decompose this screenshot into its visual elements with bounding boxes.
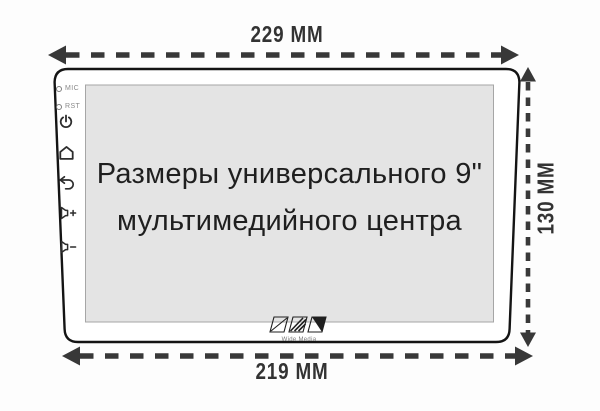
screen-title-line-1: Размеры универсального 9" [86, 151, 493, 198]
diagram: 229 MM 219 MM 130 MM Размеры универсальн… [0, 0, 600, 411]
volume-down-icon [58, 239, 78, 255]
top-arrow-right-icon [501, 46, 519, 65]
screen-title: Размеры универсального 9" мультимедийног… [86, 151, 493, 245]
power-icon [58, 114, 74, 130]
top-dimension-line [48, 46, 519, 65]
bottom-arrow-left-icon [62, 347, 80, 366]
mic-label: MIC [65, 85, 79, 92]
home-icon [58, 145, 75, 161]
top-dimension-label: 229 MM [250, 21, 323, 48]
volume-up-icon [58, 205, 78, 221]
right-arrow-down-icon [520, 333, 536, 348]
bottom-dimension-label: 219 MM [255, 358, 328, 385]
mic-port: MIC [56, 85, 79, 92]
bottom-arrow-right-icon [515, 347, 533, 366]
screen-title-line-2: мультимедийного центра [86, 198, 493, 245]
side-control-panel: MIC RST [54, 82, 84, 272]
brand-name: Wide Media [268, 337, 330, 343]
reset-label: RST [65, 103, 80, 110]
right-arrow-up-icon [520, 67, 536, 82]
wide-media-logo-icon [269, 316, 329, 333]
reset-hole-icon [56, 104, 62, 110]
top-arrow-left-icon [48, 46, 66, 65]
right-dimension-label: 130 MM [533, 161, 560, 234]
brand-logo: Wide Media [268, 316, 330, 343]
reset-port: RST [56, 103, 80, 110]
mic-hole-icon [56, 86, 62, 92]
back-icon [58, 175, 76, 191]
